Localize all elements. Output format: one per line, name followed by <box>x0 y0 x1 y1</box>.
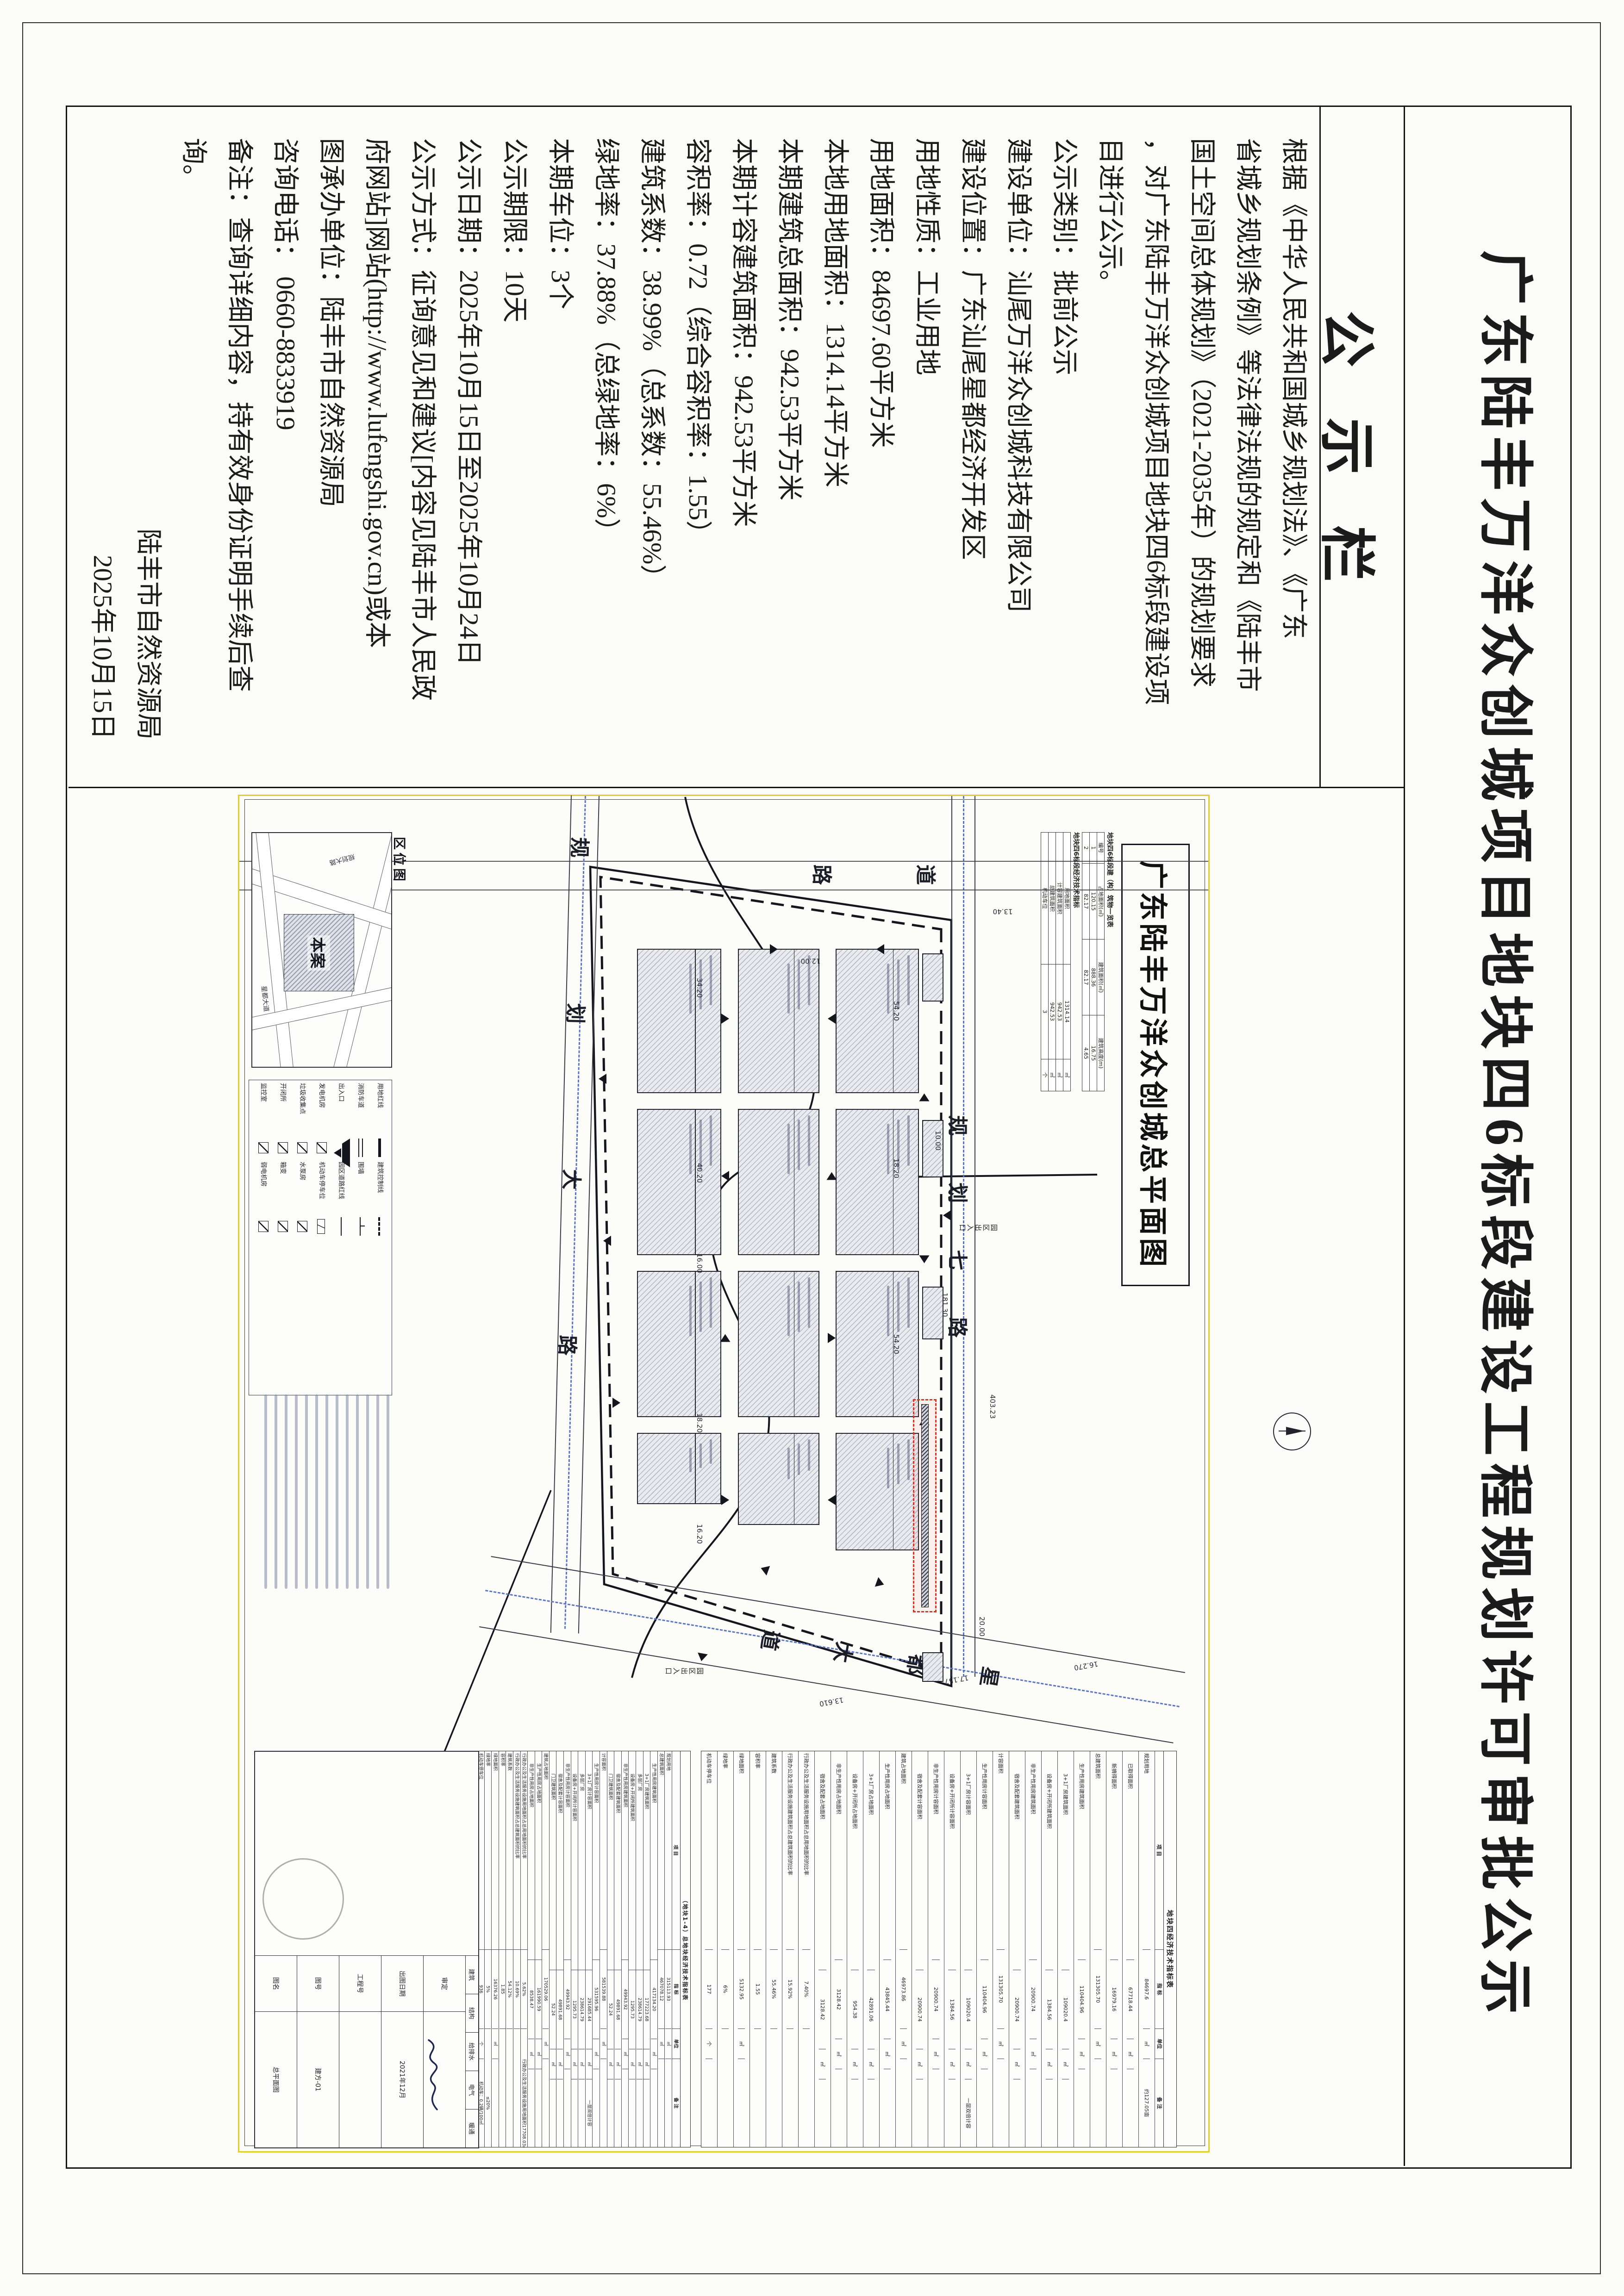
legend-box-icon <box>297 1139 307 1157</box>
dimension-label: 18.20 <box>892 1158 900 1178</box>
notice-body: 根据《中华人民共和国城乡规划法》、《广东省城乡规划条例》等法律法规的规定和《陆丰… <box>171 138 1317 777</box>
table-row: 生产性用房计容面积 110404.96 ㎡ <box>976 1751 993 2147</box>
landscape-document: 广东陆丰万洋众创城项目地块四6标段建设工程规划许可审批公示 公示栏 根据《中华人… <box>0 0 1624 2296</box>
dimension-label: 12.00 <box>801 957 821 965</box>
legend-thick-icon <box>375 1139 385 1157</box>
signature-agency: 陆丰市自然资源局 <box>125 138 171 740</box>
legend-box-icon <box>278 1139 288 1157</box>
table-row: 3+1厂房建筑面积 109020.4 ㎡ <box>1057 1751 1074 2147</box>
table-row: 宿舍及配套计容面积 49891.68 ㎡ <box>556 1751 564 2147</box>
table-row: 建筑占地面积 46973.86 ㎡ <box>895 1751 912 2147</box>
title-block-signoff-area <box>255 1752 478 1956</box>
scanned-page: 广东陆丰万洋众创城项目地块四6标段建设工程规划许可审批公示 公示栏 根据《中华人… <box>0 0 1624 2296</box>
dimension-label: 10.00 <box>934 1131 942 1151</box>
dimension-label: 13.610 <box>819 1696 844 1708</box>
legend-item-label: 水泵房 <box>299 1162 306 1216</box>
table-header: 项 目 指 标 单位 备 注 <box>1155 1751 1163 2147</box>
legend-box-icon <box>278 1217 288 1236</box>
plan-notes <box>250 1394 392 1589</box>
notice-line: 备注：查询详细内容，持有效身份证明手续后查 <box>217 138 262 777</box>
legend-item-label: 机动车停车位 <box>319 1162 325 1216</box>
dimension-label: 403.23 <box>988 1394 997 1419</box>
table-row: 生产性用房计容面积 531595.96 ㎡ <box>592 1751 600 2147</box>
title-block-rows: 审定出图日期2021年12月工程号图号建方-01图名总平面图 <box>255 1956 465 2147</box>
legend-dash-icon <box>375 1217 385 1236</box>
legend-item-label: 监控室 <box>260 1083 267 1138</box>
stamp-circle <box>262 1858 344 1940</box>
notice-line: 建设位置：广东汕尾星都经济开发区 <box>950 138 996 777</box>
table-row: 绿地率 5% ≤20% <box>484 1751 492 2147</box>
table-row: 非生产性用房占地面积 8538.47 ㎡ <box>527 1751 535 2147</box>
board-label: 公示栏 <box>1311 107 1393 785</box>
table-row: 生产性用房占地面积 43845.44 ㎡ <box>879 1751 895 2147</box>
dimension-label: 17.157 <box>944 1674 969 1686</box>
title-block-row: 图名总平面图 <box>255 1956 297 2147</box>
table-row: 3+1厂房计容面积 291685.44 ㎡ 一层双倍计容 <box>585 1751 593 2147</box>
legend-item-label: 围墙 <box>357 1162 364 1216</box>
table-row: 行政办公及生活服务设施建筑面积占总建筑面积的比率 10.69% <box>513 1751 520 2147</box>
location-map: 本案 规划大路 星都大道 <box>251 832 392 1068</box>
notice-line: 府网站]网站(http://www.lufengshi.gov.cn)或本 <box>354 138 400 777</box>
legend-item-label: 发电机房 <box>319 1083 325 1138</box>
table-row: 建筑占地面积 170529.06 ㎡ <box>542 1751 549 2147</box>
legend-item-label: 箱变 <box>280 1162 286 1216</box>
notice-line: 公示类别：批前公示 <box>1042 138 1087 777</box>
dimension-label: 54.20 <box>892 1001 900 1021</box>
notice-line: 建筑系数：38.99%（总系数：55.46%） <box>629 138 675 777</box>
table-row: 机动车停车位 177 个 <box>701 1751 717 2147</box>
table-row: 生产性用房建筑面积 417134.20 ㎡ <box>650 1751 657 2147</box>
legend-box-icon <box>317 1139 327 1157</box>
legend-box-icon <box>258 1139 269 1157</box>
table-row: 3+1厂房计容面积 109020.4 ㎡ 一层双倍计容 <box>960 1751 976 2147</box>
legend-item-label: 建筑控制线 <box>377 1162 383 1216</box>
legend-thin-icon <box>336 1217 346 1236</box>
table-row: 设备房+开闭所计容面积 1384.56 ㎡ <box>944 1751 960 2147</box>
legend-box-icon <box>297 1217 307 1236</box>
table-row: 已取得面积 67718.44 ㎡ <box>1122 1751 1138 2147</box>
dimension-label: 13.40 <box>993 907 1013 915</box>
table-row: 非生产性用房建筑面积 20900.74 ㎡ <box>1025 1751 1041 2147</box>
table-row: 行政办公及生活服务设施用地面积占总用地面积的比率 5.62% 行政办公及生活服务… <box>520 1751 528 2147</box>
legend-box-icon <box>258 1217 269 1236</box>
indicator-table-plot4: 地块四经济技术指标表 项 目 指 标 单位 备 注 规划用地 84697.6 ㎡… <box>701 1751 1177 2147</box>
table-row: 总建筑面积 467078.12 ㎡ <box>657 1751 665 2147</box>
table-row: 建筑系数 54.12% <box>506 1751 513 2147</box>
notice-line: 根据《中华人民共和国城乡规划法》、《广东 <box>1271 138 1317 777</box>
legend-pbox-icon <box>317 1217 327 1236</box>
table-row: 行政办公及生活服务设施建筑面积占总建筑面积的比率 15.92% <box>782 1751 798 2147</box>
table-row: 绿地面积 16376.26 ㎡ <box>491 1751 499 2147</box>
legend-item-label: 开闭所 <box>280 1083 286 1138</box>
notice-line: 公示方式：征询意见和建议[内容见陆丰市人民政 <box>400 138 446 777</box>
table-row: 3+1厂房建筑面积 177223.68 ㎡ <box>643 1751 650 2147</box>
table-row: 行政办公及生活服务设施用地面积占总用地面积的比率 7.40% <box>798 1751 814 2147</box>
notice-line: 本地用地面积：1314.14平方米 <box>812 138 858 777</box>
table-row: 多层厂房 238614.79 ㎡ <box>636 1751 643 2147</box>
table-row: 宿舍及配套建筑面积 49891.68 ㎡ <box>614 1751 621 2147</box>
table-row: 宿舍及配套计容面积 20900.74 ㎡ <box>912 1751 928 2147</box>
table-header: 项 目 指 标 单位 备 注 <box>672 1751 680 2147</box>
notice-line: 本期建筑总面积：942.53平方米 <box>767 138 812 777</box>
notice-line: 容积率：0.72（综合容积率：1.55） <box>675 138 721 777</box>
dimension-label: 54.20 <box>892 1334 900 1354</box>
table-row: 多层厂房 238614.79 ㎡ <box>578 1751 585 2147</box>
notice-line: 咨询电话： 0660-8833919 <box>262 138 308 777</box>
legend-item-label: 消防车道 <box>357 1083 364 1138</box>
table-row: 建筑系数 55.46% <box>766 1751 782 2147</box>
indicator-table-plot4-title: 地块四经济技术指标表 <box>1163 1751 1176 2147</box>
indicator-table-overall-title: （地块1-4）总地块经济技术指标表 <box>680 1751 690 2147</box>
legend-item-label: 用地红线 <box>377 1083 383 1138</box>
table-row: 宿舍及配套建筑面积 20900.74 ㎡ <box>1009 1751 1025 2147</box>
location-site: 本案 <box>284 914 354 991</box>
table-row: 设备房+开闭所建筑面积 1295.73 ㎡ <box>628 1751 636 2147</box>
dimension-label: 40.20 <box>695 1163 704 1183</box>
location-road-name: 星都大道 <box>259 985 271 1012</box>
table-row: 规划用地 315113.93 ㎡ <box>664 1751 672 2147</box>
table-row: 设备房+开闭所计容面积 1295.73 ㎡ <box>571 1751 578 2147</box>
table-rows: 规划用地 315113.93 ㎡ 总建筑面积 467078.12 ㎡ <box>477 1751 672 2147</box>
dimension-label: 34.20 <box>695 978 704 998</box>
discipline-row: 建筑结构给排水电气暖通 <box>465 1956 478 2147</box>
notice-line: 目进行公示。 <box>1087 138 1133 777</box>
handwritten-signature <box>419 2033 447 2116</box>
legend-item-label: 出入口 <box>338 1083 344 1138</box>
table-row: 设备房+开闭所建筑面积 1384.56 ㎡ <box>1041 1751 1057 2147</box>
north-arrow <box>1273 1412 1311 1450</box>
table-row: 设备房+开闭所占地面积 954.38 ㎡ <box>847 1751 863 2147</box>
location-site-label: 本案 <box>308 935 331 971</box>
title-block-row: 工程号 <box>339 1956 381 2147</box>
legend-dbl-icon <box>356 1139 366 1157</box>
dimension-label: 16.00 <box>695 1253 704 1273</box>
notice-line: ，对广东陆丰万洋众创城项目地块四6标段建设项 <box>1133 138 1179 777</box>
notice-line: 本期计容建筑面积：942.53平方米 <box>721 138 767 777</box>
location-road-name: 规划大路 <box>328 852 356 868</box>
title-block-row: 审定 <box>423 1956 465 2147</box>
title-row-divider <box>1404 106 1405 2166</box>
dimension-label: 20.00 <box>978 1617 986 1636</box>
notice-line: 国土空间总体规划》（2021-2035年）的规划要求 <box>1179 138 1225 777</box>
table-rows: 规划用地 84697.6 ㎡ 约127.05亩 已取得面积 67718.44 ㎡ <box>701 1751 1155 2147</box>
table-row: 门卫建筑面积 52.24 ㎡ <box>607 1751 614 2147</box>
notice-line: 绿地率：37.88%（总绿地率：6%） <box>583 138 629 777</box>
table-row: 门卫建筑面积 52.24 ㎡ <box>549 1751 556 2147</box>
indicator-table-overall: （地块1-4）总地块经济技术指标表 项 目 指 标 单位 备 注 规划用地 31… <box>477 1751 691 2147</box>
notice-line: 公示日期：2025年10月15日至2025年10月24日 <box>446 138 492 777</box>
column-divider <box>69 787 1405 788</box>
dimension-label: 18.20 <box>695 1413 704 1433</box>
legend-fence-icon <box>356 1217 366 1236</box>
legend-item-label: 弱电机房 <box>260 1162 267 1216</box>
notice-line: 省城乡规划条例》等法律法规的规定和《陆丰市 <box>1225 138 1271 777</box>
notice-line: 用地面积：84697.60平方米 <box>858 138 904 777</box>
notice-line: 公示期限：10天 <box>492 138 537 777</box>
location-map-label: 区位图 <box>391 837 409 884</box>
dimension-label: 181.30 <box>941 1293 949 1317</box>
legend-item-label: 垃圾收集点 <box>299 1083 306 1138</box>
legend-item-label: 园区道路红线 <box>338 1162 344 1216</box>
table-row: 宿舍及配套占地面积 3128.42 ㎡ <box>814 1751 831 2147</box>
dimension-label: 16.270 <box>1074 1660 1099 1672</box>
notice-line: 建设单位：汕尾万洋众创城科技有限公司 <box>996 138 1042 777</box>
signature-block: 陆丰市自然资源局 2025年10月15日 <box>80 138 171 740</box>
table-row: 3+1厂房占地面积 42891.06 ㎡ <box>863 1751 879 2147</box>
table-row: 计容面积 581539.88 ㎡ <box>600 1751 607 2147</box>
notice-line: 询。 <box>171 138 217 777</box>
notice-line: 用地性质：工业用地 <box>904 138 950 777</box>
table-row: 生产性用房占地面积 161990.59 ㎡ <box>535 1751 542 2147</box>
site-plan-sheet: 广东陆丰万洋众创城总平面图 地块四6标段建（构）筑物一览表 编号占地面积(㎡)建… <box>238 795 1210 2153</box>
table-row: 非生产性用房建筑面积 49943.92 ㎡ <box>621 1751 629 2147</box>
table-row: 总建筑面积 131305.70 ㎡ <box>1090 1751 1106 2147</box>
title-block-row: 出图日期2021年12月 <box>381 1956 423 2147</box>
page-title: 广东陆丰万洋众创城项目地块四6标段建设工程规划许可审批公示 <box>1471 106 1550 2166</box>
table-row: 绿地面积 5132.95 ㎡ <box>733 1751 750 2147</box>
legend-tri-icon <box>332 1139 350 1167</box>
table-row: 容积率 1.85 <box>499 1751 506 2147</box>
notice-line: 图承办单位：陆丰市自然资源局 <box>308 138 354 777</box>
table-row: 非生产性用房计容面积 20900.74 ㎡ <box>928 1751 944 2147</box>
drawing-title-block: 建筑结构给排水电气暖通 审定出图日期2021年12月工程号图号建方-01图名总平… <box>254 1751 479 2148</box>
dimension-label: 16.20 <box>695 1524 704 1544</box>
notice-line: 本期车位：3个 <box>537 138 583 777</box>
table-row: 计容面积 131305.70 ㎡ <box>993 1751 1009 2147</box>
table-row: 生产性用房建筑面积 110404.96 ㎡ <box>1074 1751 1090 2147</box>
table-row: 容积率 1.55 <box>750 1751 766 2147</box>
title-block-row: 图号建方-01 <box>297 1956 339 2147</box>
table-row: 新摘得面积 16979.16 ㎡ <box>1106 1751 1122 2147</box>
table-row: 绿地率 6% <box>717 1751 733 2147</box>
plan-legend: 用地红线建筑控制线消防车道围墙出入口园区道路红线发电机房机动车停车位垃圾收集点水… <box>249 1080 392 1395</box>
signature-date: 2025年10月15日 <box>80 138 125 740</box>
table-row: 非生产性用房计容面积 49943.92 ㎡ <box>563 1751 571 2147</box>
table-row: 非生产性用房占地面积 3128.42 ㎡ <box>831 1751 847 2147</box>
table-row: 规划用地 84697.6 ㎡ 约127.05亩 <box>1138 1751 1155 2147</box>
